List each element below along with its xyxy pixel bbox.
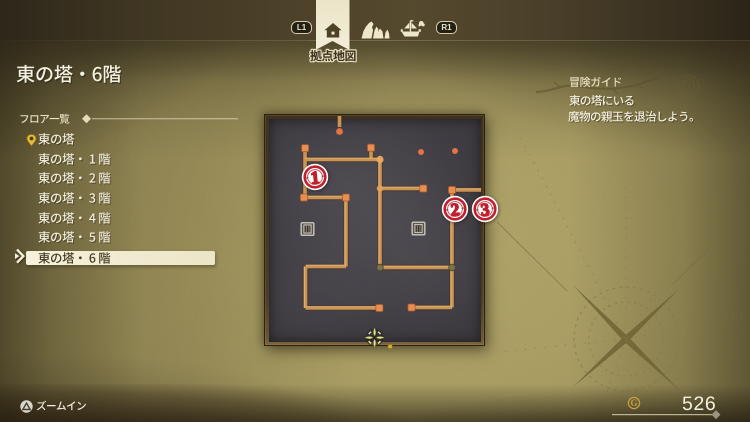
svg-text:G: G: [630, 398, 637, 408]
